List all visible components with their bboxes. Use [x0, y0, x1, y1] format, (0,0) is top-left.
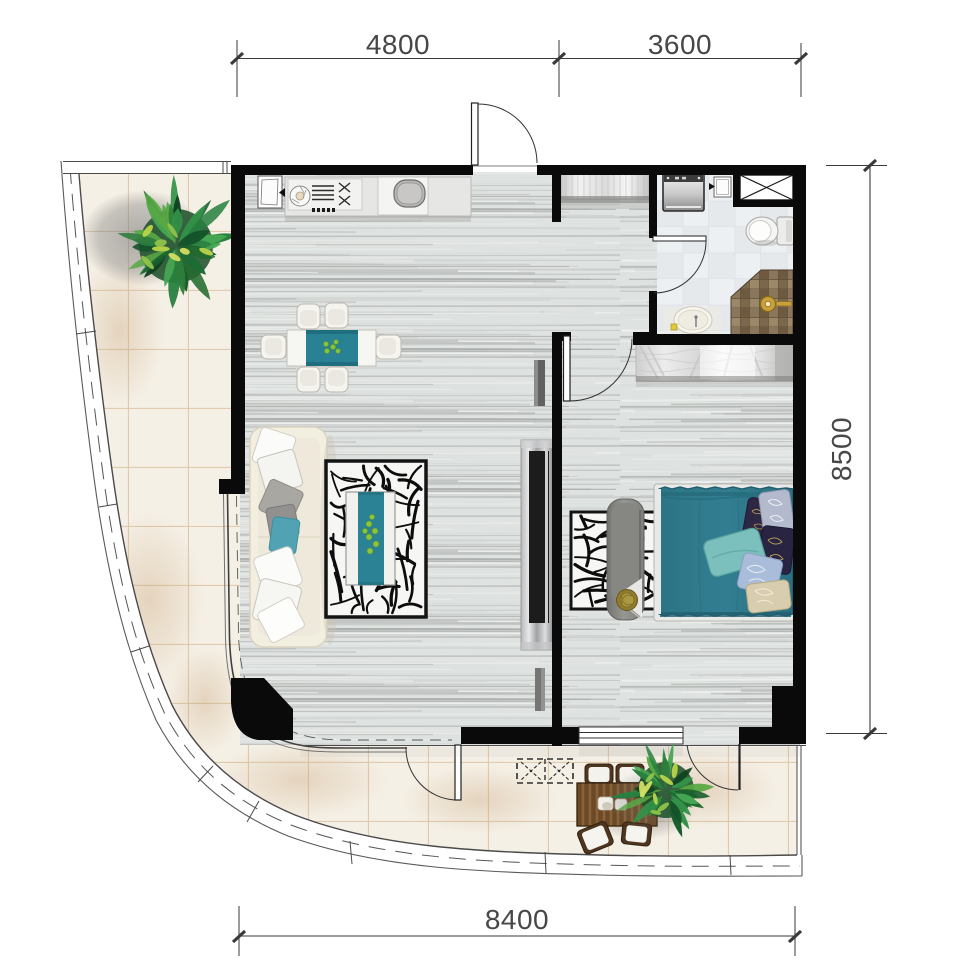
svg-text:8500: 8500 [826, 417, 857, 481]
svg-text:8400: 8400 [485, 904, 549, 935]
svg-text:3600: 3600 [648, 29, 712, 60]
svg-text:4800: 4800 [366, 29, 430, 60]
